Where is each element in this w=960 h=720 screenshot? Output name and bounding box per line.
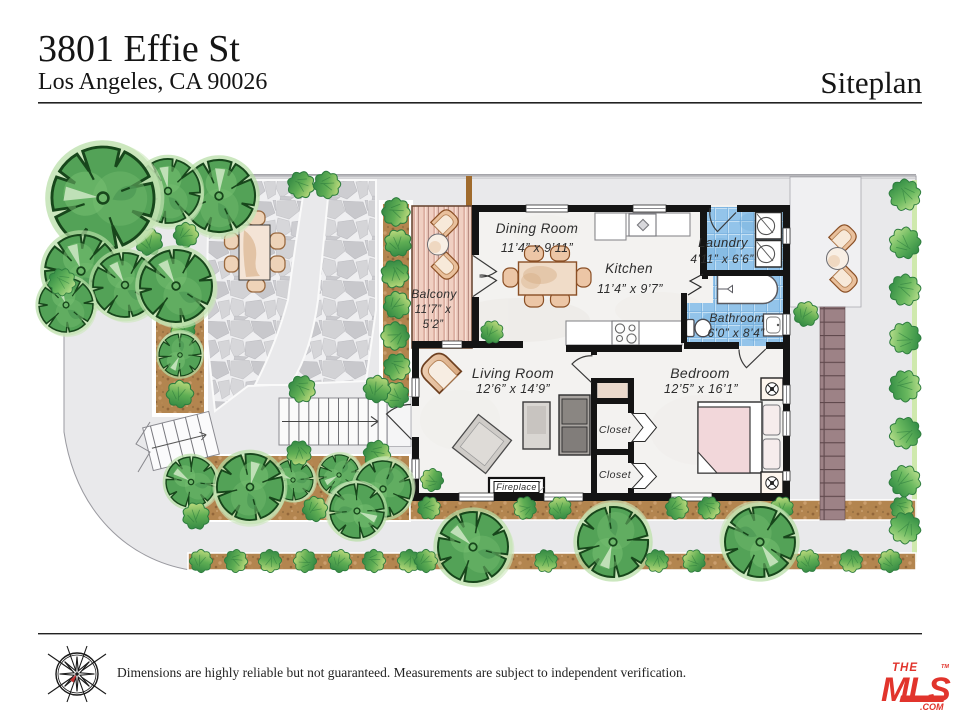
svg-text:Kitchen: Kitchen: [605, 261, 653, 276]
svg-text:11’4” x 9’7”: 11’4” x 9’7”: [597, 282, 663, 296]
svg-text:Los Angeles, CA 90026: Los Angeles, CA 90026: [38, 69, 267, 95]
svg-text:4’11” x 6’6”: 4’11” x 6’6”: [690, 252, 754, 266]
svg-text:Closet: Closet: [599, 469, 632, 481]
svg-text:5’2”: 5’2”: [423, 319, 445, 331]
svg-text:Living Room: Living Room: [472, 365, 554, 381]
svg-text:Laundry: Laundry: [698, 235, 749, 250]
svg-text:Bedroom: Bedroom: [670, 365, 730, 381]
svg-text:Balcony: Balcony: [411, 287, 457, 301]
svg-text:12’6” x 14’9”: 12’6” x 14’9”: [476, 382, 550, 396]
svg-text:11’4” x 9’11”: 11’4” x 9’11”: [501, 241, 574, 255]
svg-text:.COM: .COM: [920, 702, 944, 712]
svg-text:3801 Effie St: 3801 Effie St: [38, 28, 240, 70]
svg-text:11’7” x: 11’7” x: [415, 304, 452, 316]
svg-text:Closet: Closet: [599, 424, 632, 436]
svg-text:Dimensions are highly reliable: Dimensions are highly reliable but not g…: [117, 665, 686, 680]
svg-text:12’5” x 16’1”: 12’5” x 16’1”: [664, 382, 738, 396]
svg-text:Siteplan: Siteplan: [820, 65, 922, 100]
svg-text:6’0” x 8’4”: 6’0” x 8’4”: [707, 326, 765, 340]
svg-text:Fireplace: Fireplace: [496, 482, 537, 492]
svg-text:Bathroom: Bathroom: [709, 311, 764, 325]
svg-text:TM: TM: [941, 664, 949, 670]
svg-text:Dining Room: Dining Room: [496, 221, 578, 236]
